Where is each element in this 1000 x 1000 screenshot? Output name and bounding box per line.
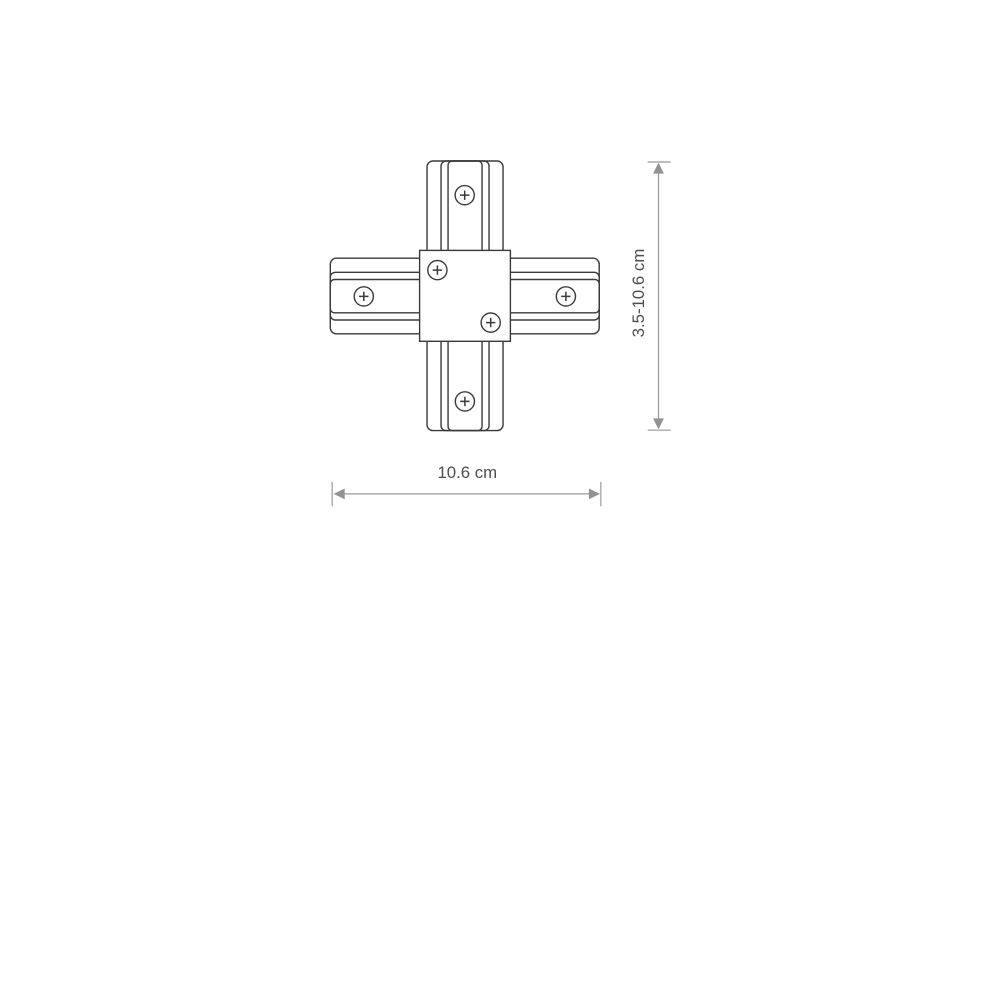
svg-text:10.6 cm: 10.6 cm xyxy=(437,463,497,482)
svg-text:3.5-10.6 cm: 3.5-10.6 cm xyxy=(629,249,648,338)
